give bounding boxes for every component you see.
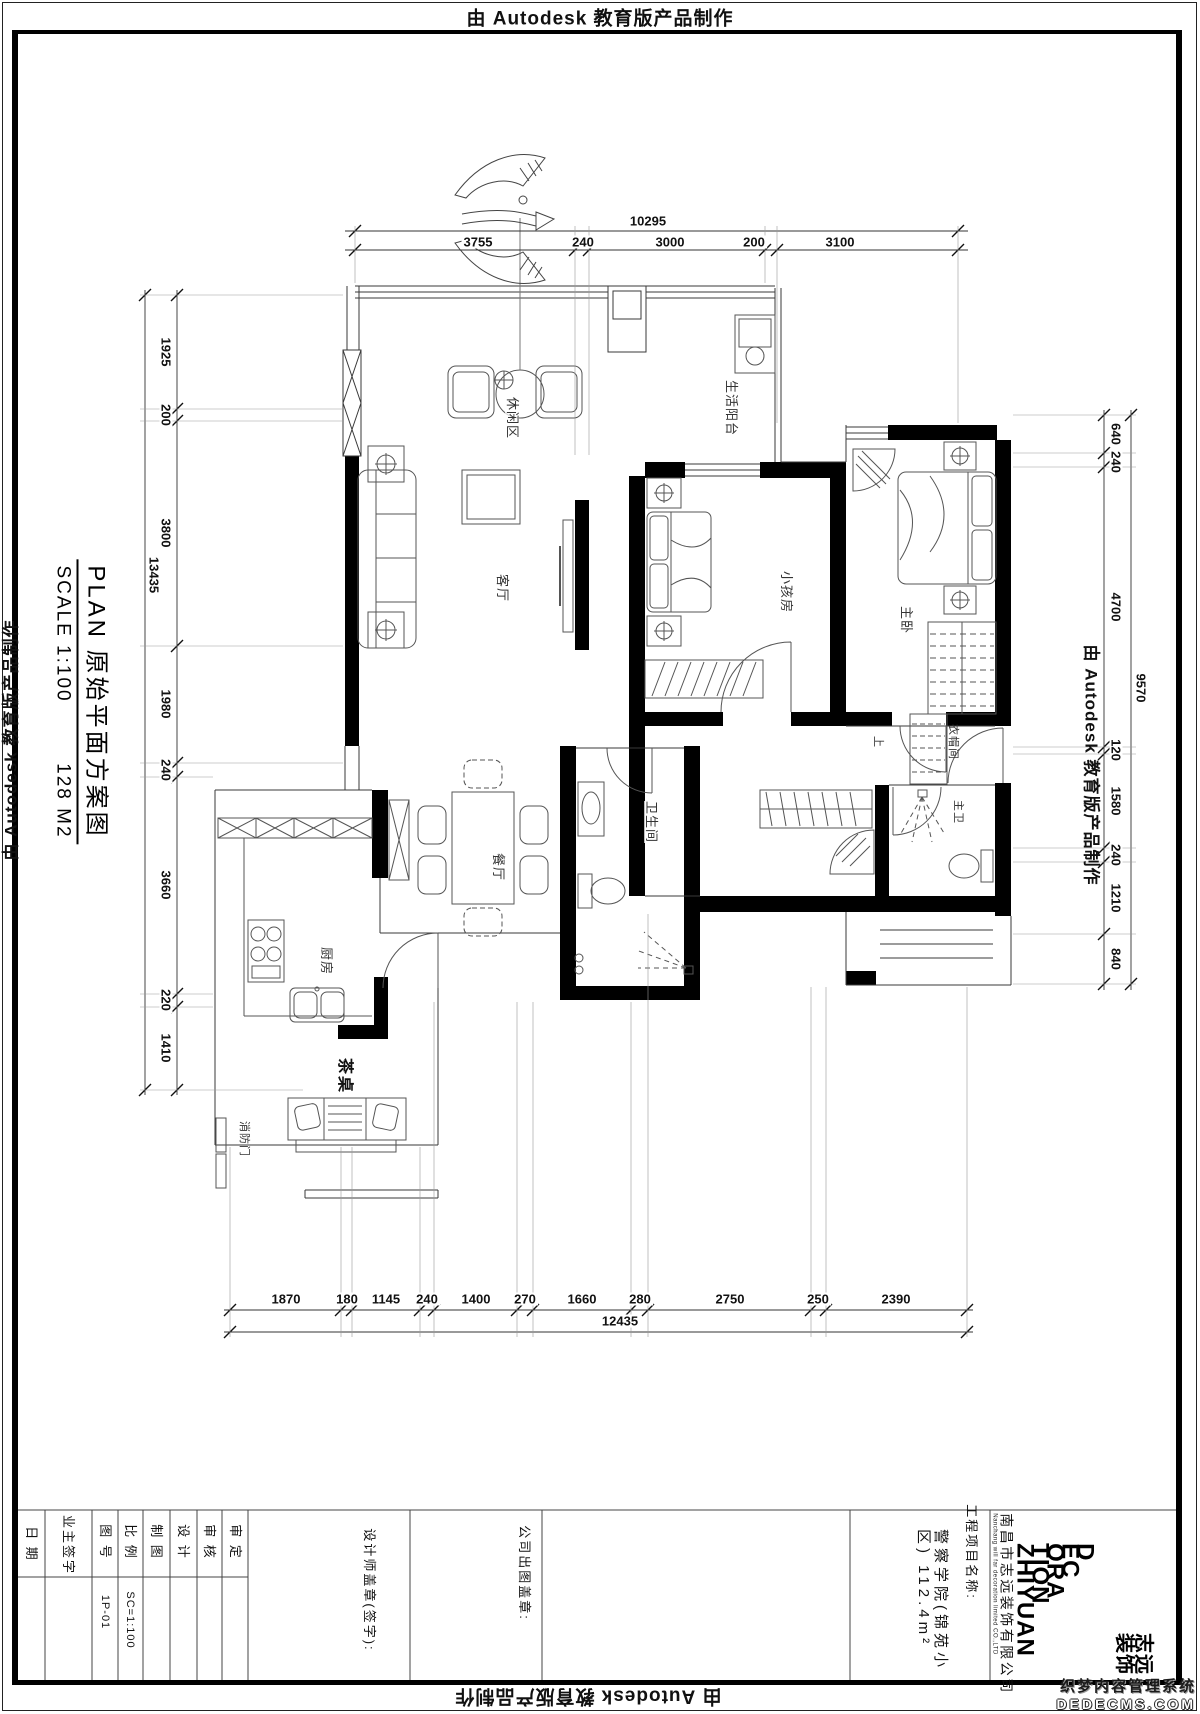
plan-title: PLAN 原始平面方案图 SCALE 1:100 128 M2 bbox=[52, 559, 117, 844]
floor-plan-linework bbox=[0, 0, 1200, 1714]
titleblock-project-name: 警察学院(锦苑小 区) 112.4m² bbox=[915, 1529, 949, 1671]
logo-cn-line2: 装饰 bbox=[1114, 1633, 1133, 1675]
dim-top-seg: 240 bbox=[570, 236, 596, 249]
plan-title-text: PLAN 原始平面方案图 bbox=[77, 559, 117, 844]
room-label-master-bath: 主卫 bbox=[952, 800, 964, 824]
dim-right-seg: 1580 bbox=[1110, 785, 1123, 818]
dim-left-seg: 240 bbox=[160, 757, 173, 783]
dim-left-overall: 13435 bbox=[148, 555, 161, 595]
room-label-kitchen: 厨房 bbox=[319, 947, 333, 975]
room-label-master: 主卧 bbox=[899, 606, 913, 634]
area-label: 128 M2 bbox=[53, 763, 74, 838]
dim-top-seg: 3000 bbox=[654, 236, 687, 249]
room-label-up: 上 bbox=[872, 736, 884, 748]
dim-right-seg: 4700 bbox=[1110, 591, 1123, 624]
watermark-line2: DEDECMS.COM bbox=[1056, 1696, 1196, 1712]
dim-bottom-seg: 240 bbox=[414, 1293, 440, 1306]
north-arrow-icon bbox=[455, 155, 554, 284]
room-label-dining: 餐厅 bbox=[491, 853, 505, 881]
dim-right-seg: 1210 bbox=[1110, 882, 1123, 915]
room-label-tea-table: 茶桌 bbox=[335, 1058, 359, 1094]
dim-left-seg: 1980 bbox=[160, 688, 173, 721]
logo-line: ZHIYUAN bbox=[1018, 1543, 1033, 1657]
titleblock-approved-label: 审 定 bbox=[228, 1524, 242, 1560]
dim-bottom-seg: 2750 bbox=[714, 1293, 747, 1306]
furniture bbox=[218, 218, 996, 1152]
dim-right-seg: 240 bbox=[1110, 842, 1123, 868]
room-label-leisure: 休闲区 bbox=[505, 397, 519, 439]
dim-bottom-seg: 2390 bbox=[880, 1293, 913, 1306]
room-label-fire-door: 消防门 bbox=[238, 1121, 250, 1157]
company-logo: D EC ORA TION ZHIYUAN bbox=[1018, 1543, 1093, 1657]
dim-bottom-seg: 280 bbox=[627, 1293, 653, 1306]
autodesk-stamp-top: 由 Autodesk 教育版产品制作 bbox=[466, 4, 733, 31]
dim-bottom-seg: 1660 bbox=[566, 1293, 599, 1306]
room-label-cloak: 衣帽间 bbox=[947, 724, 959, 760]
dim-bottom-seg: 1400 bbox=[460, 1293, 493, 1306]
titleblock-drafted-label: 制 图 bbox=[149, 1524, 163, 1560]
dim-left-seg: 1410 bbox=[160, 1032, 173, 1065]
titleblock-checked-label: 审 核 bbox=[202, 1524, 216, 1560]
project-name-line1: 警察学院(锦苑小 bbox=[932, 1529, 949, 1671]
titleblock-designed-label: 设 计 bbox=[176, 1524, 190, 1560]
dim-top-overall: 10295 bbox=[628, 215, 668, 228]
project-name-line2: 区) 112.4m² bbox=[915, 1529, 932, 1671]
dim-right-seg: 240 bbox=[1110, 449, 1123, 475]
dim-left-seg: 3800 bbox=[160, 517, 173, 550]
watermark-line1: 织梦内容管理系统 bbox=[1056, 1675, 1196, 1696]
dim-right-seg: 840 bbox=[1110, 946, 1123, 972]
dim-top-seg: 200 bbox=[741, 236, 767, 249]
dim-bottom-seg: 1145 bbox=[370, 1293, 402, 1306]
room-label-living: 客厅 bbox=[495, 574, 509, 602]
dim-bottom-seg: 250 bbox=[805, 1293, 831, 1306]
company-name-en: Nanchang will far decoration limited CO.… bbox=[991, 1513, 999, 1695]
dim-bottom-overall: 12435 bbox=[600, 1315, 640, 1328]
autodesk-stamp-right: 由 Autodesk 教育版产品制作 bbox=[1081, 645, 1106, 886]
dim-right-seg: 120 bbox=[1110, 737, 1123, 763]
drawing-sheet: 由 Autodesk 教育版产品制作 由 Autodesk 教育版产品制作 由 … bbox=[0, 0, 1200, 1714]
autodesk-stamp-bottom: 由 Autodesk 教育版产品制作 bbox=[454, 1685, 721, 1712]
company-logo-cn: 志远 装饰 bbox=[1114, 1633, 1152, 1675]
dim-right-seg: 640 bbox=[1110, 421, 1123, 447]
titleblock-sheet-no-label: 图 号 bbox=[98, 1524, 112, 1560]
scale-label: SCALE 1:100 bbox=[53, 565, 74, 702]
room-label-balcony: 生活阳台 bbox=[724, 380, 738, 436]
dim-left-seg: 3660 bbox=[160, 869, 173, 902]
dim-top-seg: 3755 bbox=[462, 236, 495, 249]
room-label-kids: 小孩房 bbox=[779, 571, 793, 613]
dim-bottom-seg: 1870 bbox=[270, 1293, 303, 1306]
titleblock-scale-label: 比 例 bbox=[123, 1524, 137, 1560]
dim-left-seg: 220 bbox=[160, 987, 173, 1013]
watermark: 织梦内容管理系统 DEDECMS.COM bbox=[1056, 1675, 1196, 1712]
dim-right-overall: 9570 bbox=[1135, 672, 1148, 705]
dim-left-seg: 1925 bbox=[160, 336, 173, 369]
dim-left-seg: 200 bbox=[160, 402, 173, 428]
sheet-frame bbox=[3, 3, 1197, 1711]
logo-cn-line1: 志远 bbox=[1133, 1633, 1152, 1675]
titleblock-sheet-no: 1P-01 bbox=[99, 1595, 111, 1629]
dim-bottom-seg: 270 bbox=[512, 1293, 538, 1306]
room-label-bath: 卫生间 bbox=[644, 801, 658, 843]
titleblock-company-seal-label: 公司出图盖章: bbox=[517, 1525, 531, 1621]
titleblock-scale-value: SC=1:100 bbox=[124, 1591, 136, 1648]
dim-top-seg: 3100 bbox=[824, 236, 857, 249]
titleblock-designer-seal-label: 设计师盖章(签字): bbox=[362, 1528, 376, 1651]
titleblock-project-label: 工程项目名称: bbox=[964, 1504, 978, 1600]
autodesk-stamp-left: 由 Autodesk 教育版产品制作 bbox=[0, 620, 22, 861]
plan-scale-text: SCALE 1:100 128 M2 bbox=[52, 559, 77, 844]
dim-bottom-seg: 180 bbox=[334, 1293, 360, 1306]
company-name-block: 南昌市志远装饰有限公司 Nanchang will far decoration… bbox=[991, 1513, 1014, 1695]
titleblock-owner-sign-label: 业主签字 bbox=[61, 1515, 75, 1575]
titleblock-date-label: 日 期 bbox=[24, 1526, 38, 1562]
